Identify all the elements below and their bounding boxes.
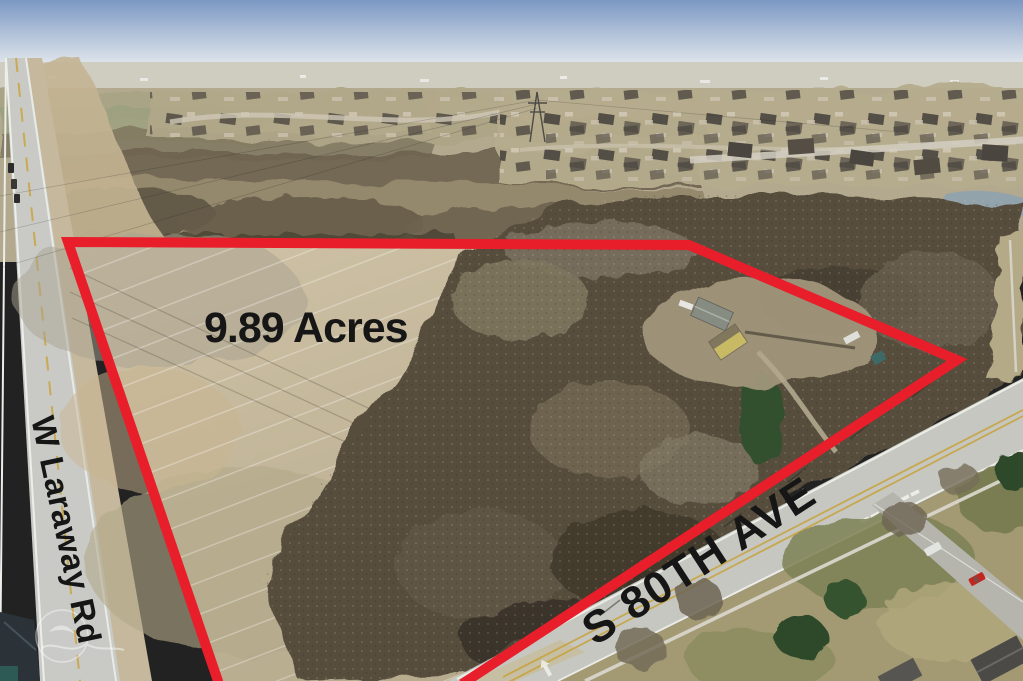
parkway-tree	[883, 502, 927, 538]
parkway-tree	[940, 464, 980, 496]
roadside-building	[0, 612, 40, 681]
parkway-tree	[676, 580, 724, 620]
evergreen-tree	[740, 374, 784, 466]
aerial-photo-canvas	[0, 0, 1023, 681]
evergreen-tree	[774, 614, 826, 658]
parkway-tree	[614, 628, 666, 668]
aerial-property-photo: 9.89 Acres W Laraway Rd S 80TH AVE	[0, 0, 1023, 681]
evergreen-tree	[826, 582, 866, 618]
